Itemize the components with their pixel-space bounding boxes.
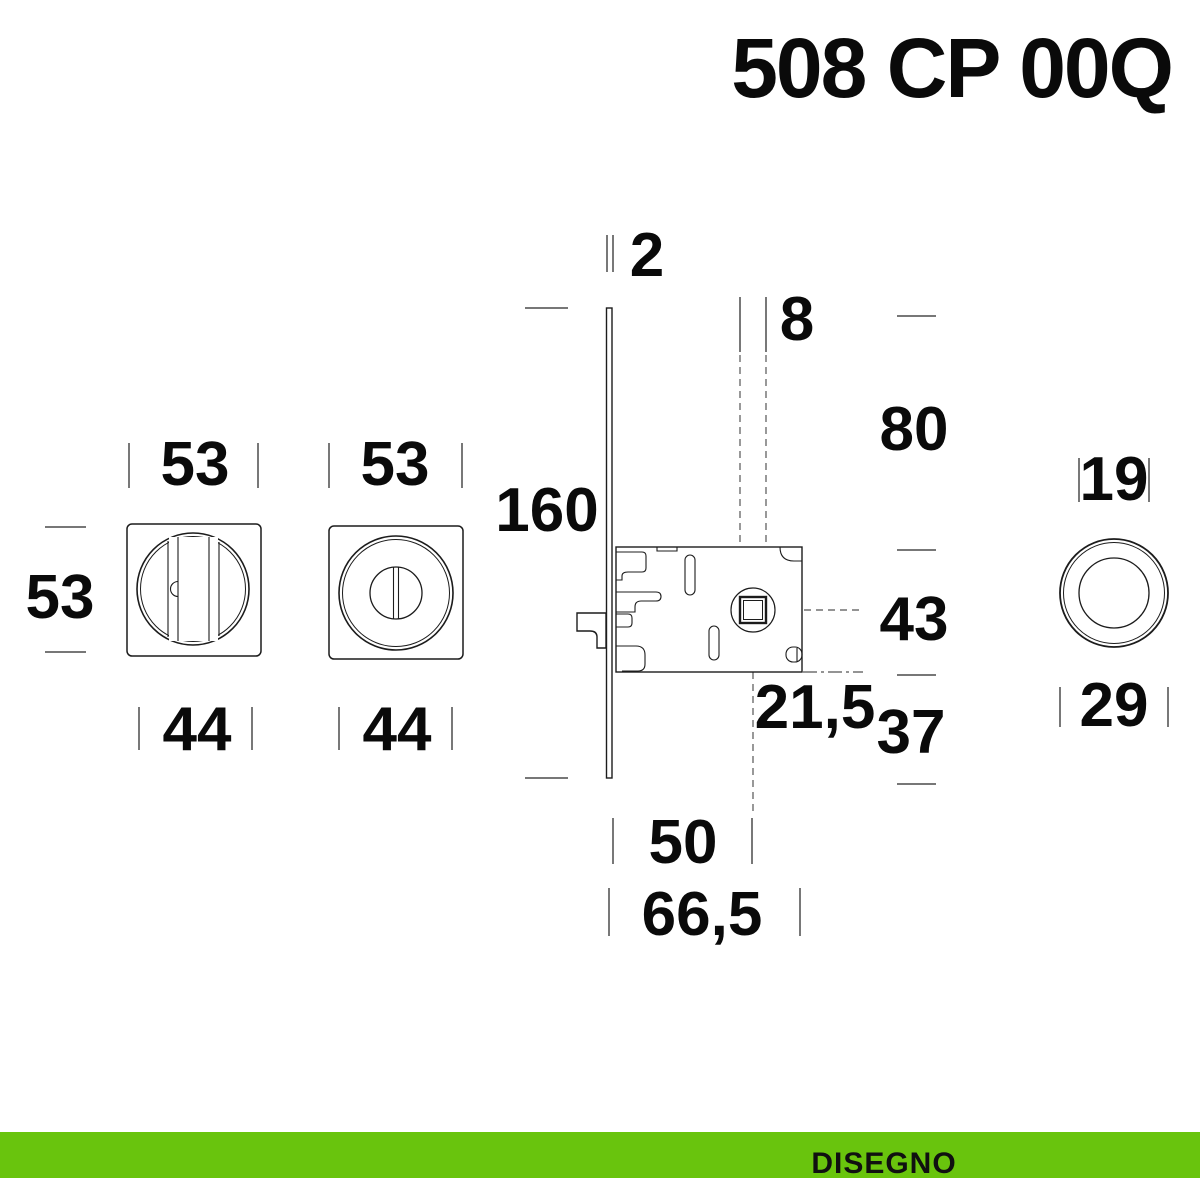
dim-faceplate-length: 160 [495, 476, 598, 545]
rosette-thumbturn [127, 524, 261, 656]
technical-drawing: 2 8 160 80 43 37 21,5 50 66,5 53 53 53 4… [0, 0, 1200, 1200]
dim-spindle-below-lock: 21,5 [755, 673, 876, 742]
dim-rosette-inner-left: 44 [163, 695, 232, 764]
footer-accent-bar [0, 1132, 1200, 1178]
dim-edge-to-lock-top: 80 [880, 395, 949, 464]
dim-rosette-width-left: 53 [161, 430, 230, 499]
dim-backset: 50 [649, 808, 718, 877]
dim-lock-bottom-offset: 37 [877, 698, 946, 767]
dim-pull-outer-diameter: 29 [1080, 671, 1149, 740]
dim-spindle-square: 8 [780, 285, 814, 354]
dim-rosette-height: 53 [26, 563, 95, 632]
round-flush-pull [1060, 539, 1168, 647]
dim-rosette-width-right: 53 [361, 430, 430, 499]
dim-rosette-inner-right: 44 [363, 695, 432, 764]
rosette-coin-release [329, 526, 463, 659]
dim-lock-body-height: 43 [880, 585, 949, 654]
dim-faceplate-thickness: 2 [630, 221, 664, 290]
dim-lock-depth: 66,5 [642, 880, 763, 949]
dim-pull-recess-diameter: 19 [1080, 445, 1149, 514]
latch-bolt [577, 613, 606, 648]
faceplate [607, 308, 613, 778]
footer-tab-label: DISEGNO [811, 1147, 956, 1181]
